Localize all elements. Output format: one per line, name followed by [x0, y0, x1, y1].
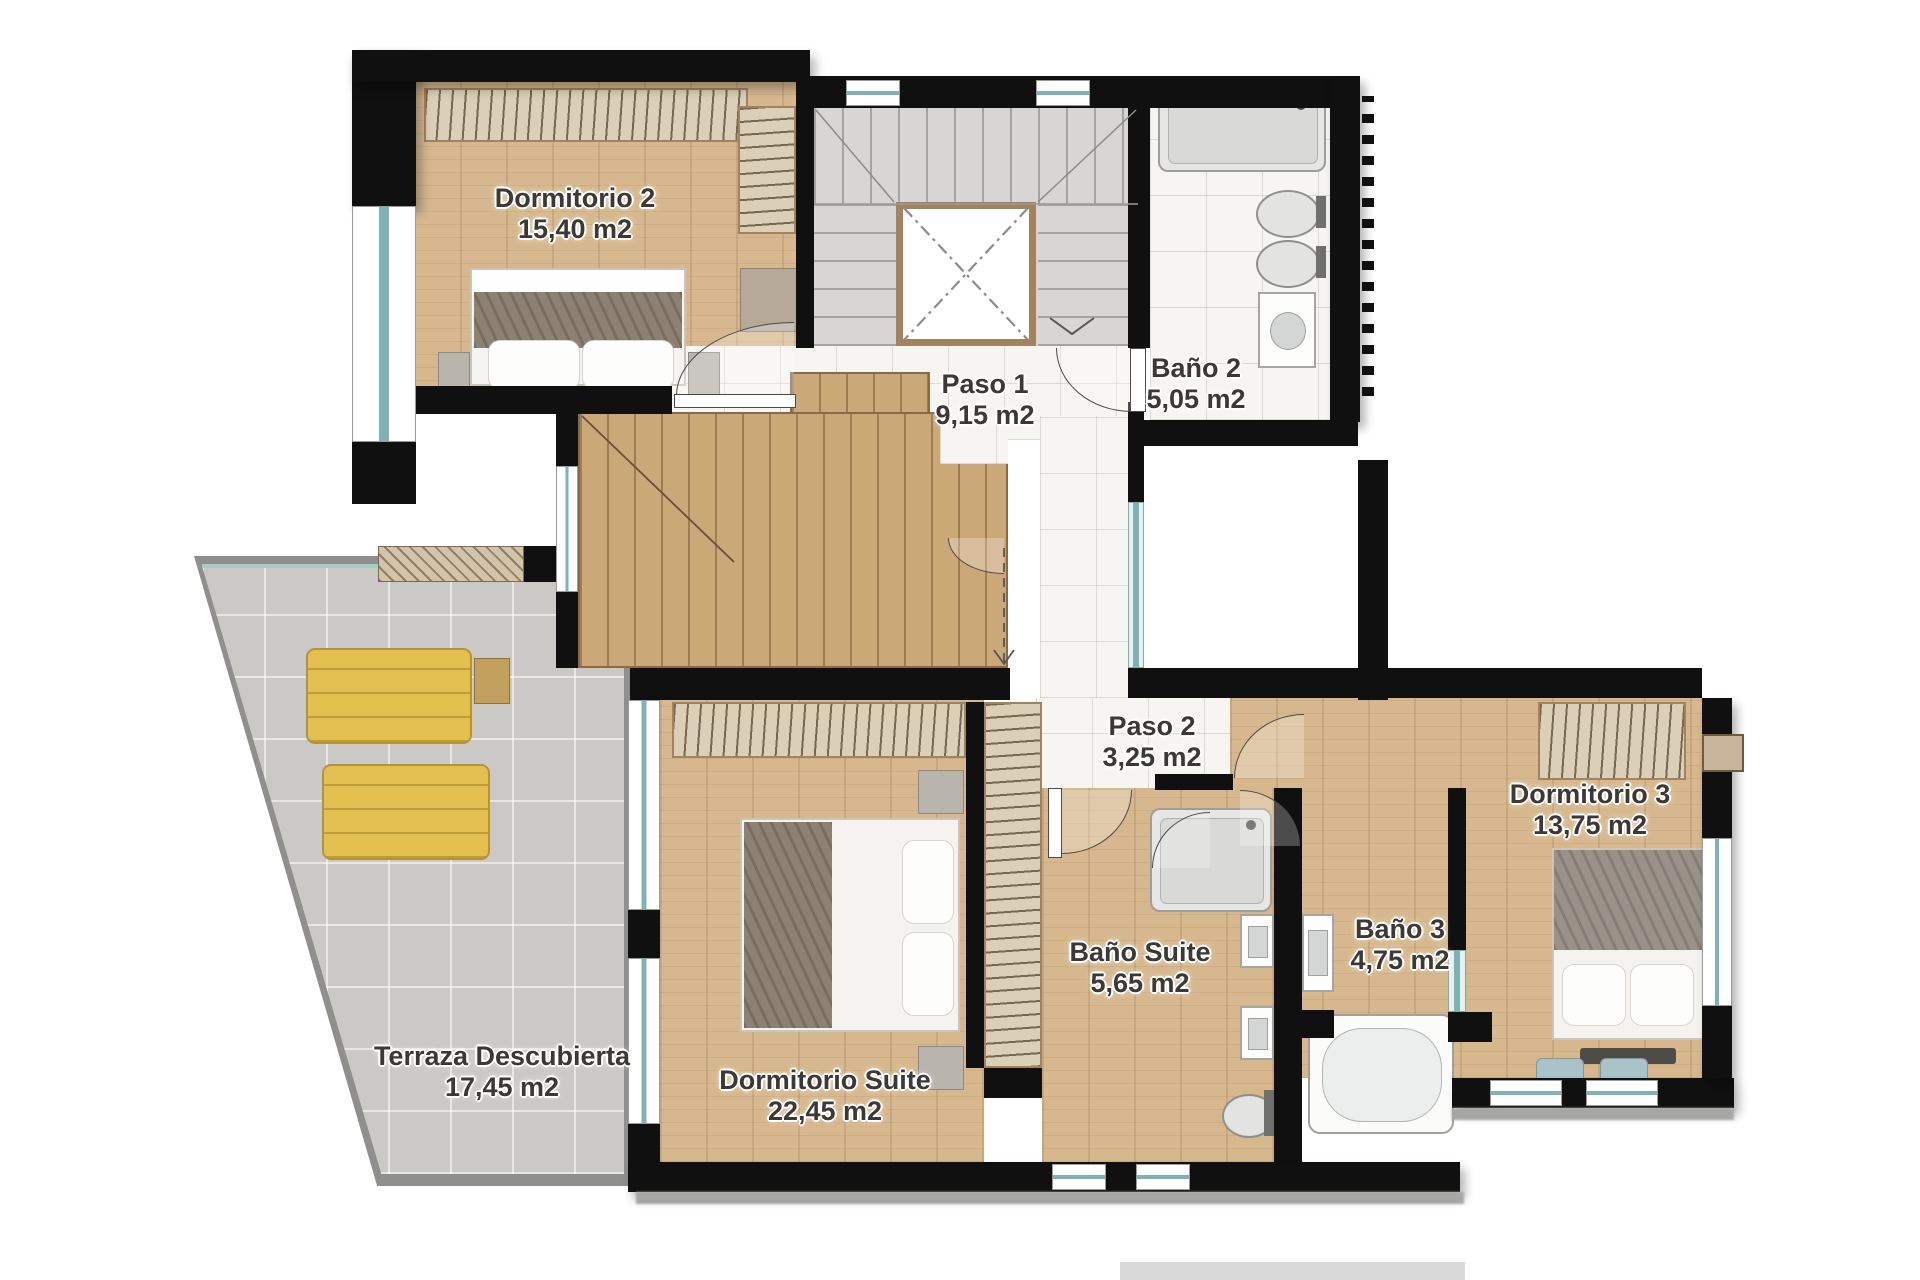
room-name: Baño 3	[1350, 914, 1449, 945]
floor-plan: Dormitorio 2 15,40 m2 Paso 1 9,15 m2 Bañ…	[0, 0, 1920, 1280]
window-suite-terrace-1	[628, 700, 660, 910]
upper-stairs-steps-right	[1038, 204, 1138, 346]
plinth-bottom-main	[636, 1192, 1464, 1204]
watermark-bar	[1120, 1262, 1465, 1280]
room-label-paso-1: Paso 1 9,15 m2	[935, 369, 1034, 431]
room-area: 22,45 m2	[719, 1096, 931, 1127]
wardrobe-dormitorio-suite	[672, 702, 966, 758]
room-area: 15,40 m2	[495, 214, 656, 245]
floor-corridor	[1040, 416, 1138, 698]
room-name: Dormitorio Suite	[719, 1065, 931, 1096]
wall-midstairs-left-top	[556, 412, 578, 466]
window-corridor	[1128, 502, 1144, 668]
room-label-bano-3: Baño 3 4,75 m2	[1350, 914, 1449, 976]
room-label-bano-suite: Baño Suite 5,65 m2	[1069, 937, 1210, 999]
closet-dormitorio-2	[738, 106, 796, 234]
wall-suite-window-mid	[628, 910, 660, 958]
wall-suite-top	[630, 668, 1010, 700]
room-area: 5,65 m2	[1069, 968, 1210, 999]
plinth-bottom-right	[1452, 1108, 1734, 1120]
bed-suite-blanket	[744, 822, 832, 1028]
sink-bano-suite-2-basin	[1248, 1018, 1268, 1050]
wall-midstairs-left-bottom	[556, 592, 578, 668]
room-area: 3,25 m2	[1102, 742, 1201, 773]
room-label-paso-2: Paso 2 3,25 m2	[1102, 711, 1201, 773]
room-label-terraza: Terraza Descubierta 17,45 m2	[374, 1041, 630, 1103]
toilet-bano-2	[1256, 190, 1320, 238]
wall-paso2-bottom	[1155, 774, 1233, 790]
toilet-bano-2-tank	[1316, 196, 1326, 228]
room-name: Dormitorio 3	[1510, 779, 1671, 810]
room-label-dormitorio-2: Dormitorio 2 15,40 m2	[495, 183, 656, 245]
sink-bano-suite-1-basin	[1248, 926, 1268, 958]
room-label-bano-2: Baño 2 5,05 m2	[1146, 353, 1245, 415]
wardrobe-dormitorio-2	[424, 88, 748, 142]
bed2-pillow-right	[582, 340, 674, 390]
window-midstairs-left	[556, 466, 578, 592]
stone-wall-terrace	[378, 546, 524, 582]
wall-top-dorm2	[352, 50, 810, 82]
window-dormitorio-3-right	[1702, 838, 1732, 1006]
wall-bano2-right-ticks	[1362, 96, 1374, 396]
bed-suite-pillow-top	[902, 840, 954, 924]
room-name: Dormitorio 2	[495, 183, 656, 214]
room-name: Baño Suite	[1069, 937, 1210, 968]
room-name: Paso 2	[1102, 711, 1201, 742]
sun-lounger-1	[306, 648, 472, 744]
wall-corridor-right-top	[1128, 402, 1144, 502]
bed3-blanket	[1554, 850, 1702, 950]
room-area: 17,45 m2	[374, 1072, 630, 1103]
nightstand-suite-top	[918, 770, 964, 814]
room-area: 5,05 m2	[1146, 384, 1245, 415]
bed2-sheet	[472, 270, 684, 294]
wall-bano2-bottom	[1141, 420, 1358, 446]
window-bottom-2	[1136, 1164, 1190, 1190]
bidet-bano-2	[1256, 240, 1320, 288]
wall-stone-corner	[524, 546, 556, 582]
room-area: 9,15 m2	[935, 400, 1034, 431]
wall-bano3-bottom-left	[1274, 1010, 1334, 1038]
door-leaf-dormitorio-2	[674, 394, 796, 408]
wall-suite-window-bottom	[628, 1124, 660, 1164]
stair-void	[896, 202, 1036, 346]
wall-notch-right	[1358, 460, 1388, 700]
room-area: 4,75 m2	[1350, 945, 1449, 976]
room-name: Terraza Descubierta	[374, 1041, 630, 1072]
wall-bano3-corner	[1448, 1012, 1492, 1042]
wall-bano2-left	[1128, 108, 1150, 348]
bathtub-bano-3-inner	[1322, 1028, 1442, 1122]
toilet-bano-suite-tank	[1264, 1090, 1274, 1136]
wall-suite-bath-divider	[966, 702, 984, 1068]
bed3-pillow-left	[1562, 964, 1626, 1026]
lounger-side-table	[474, 658, 510, 704]
wall-dorm2-right	[796, 82, 814, 348]
sink-bano-3-basin	[1308, 930, 1328, 976]
window-suite-terrace-2	[628, 958, 660, 1124]
window-dormitorio-2-left	[352, 206, 416, 442]
door-leaf-bano-suite	[1048, 788, 1062, 858]
sun-lounger-2	[322, 764, 490, 860]
bidet-bano-2-tank	[1316, 246, 1326, 278]
room-name: Baño 2	[1146, 353, 1245, 384]
wall-bottom-main	[628, 1162, 1460, 1192]
window-bottom-1	[1052, 1164, 1106, 1190]
upper-stairs-steps-top	[814, 108, 1138, 204]
bed-suite-pillow-bottom	[902, 932, 954, 1016]
wall-top-bano2	[1140, 76, 1360, 108]
wall-bano2-right	[1330, 76, 1360, 422]
bed2-pillow-left	[488, 340, 580, 390]
window-stairs-top-1	[846, 80, 900, 106]
wall-lower-right-top	[1128, 668, 1702, 698]
upper-stairs-steps-left	[814, 204, 896, 346]
wall-dorm2-left-corner	[352, 442, 416, 504]
room-label-dormitorio-3: Dormitorio 3 13,75 m2	[1510, 779, 1671, 841]
window-bottom-right-2	[1586, 1080, 1658, 1106]
window-bottom-right-1	[1490, 1080, 1562, 1106]
exterior-ledge-dorm3	[1702, 734, 1744, 772]
window-bano3-dorm3	[1448, 950, 1466, 1012]
room-area: 13,75 m2	[1510, 810, 1671, 841]
room-name: Paso 1	[935, 369, 1034, 400]
mid-stairs-landing	[790, 372, 930, 414]
wall-bano3-dorm3-divider	[1448, 788, 1466, 950]
sink-bano-2-basin	[1270, 312, 1306, 350]
wall-closet-bottom	[984, 1068, 1042, 1098]
bed3-pillow-right	[1630, 964, 1694, 1026]
closet-dormitorio-suite	[984, 702, 1042, 1068]
window-stairs-top-2	[1036, 80, 1090, 106]
wardrobe-dormitorio-3	[1538, 702, 1686, 780]
room-label-dormitorio-suite: Dormitorio Suite 22,45 m2	[719, 1065, 931, 1127]
door-leaf-bano-2	[1130, 348, 1146, 412]
